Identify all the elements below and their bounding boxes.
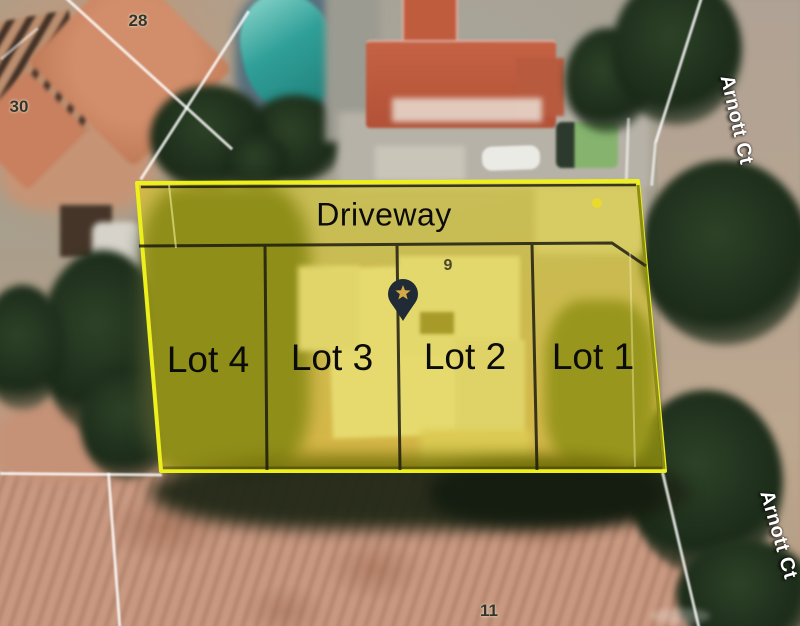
parcel-number-11: 11 xyxy=(480,601,498,621)
driveway-label: Driveway xyxy=(316,197,452,234)
lot-4-label: Lot 4 xyxy=(167,339,249,381)
lot-1-label: Lot 1 xyxy=(552,336,634,378)
lot-2-label: Lot 2 xyxy=(424,336,506,378)
parcel-number-30: 30 xyxy=(10,97,29,117)
parcel-number-28: 28 xyxy=(129,11,148,31)
parcel-number-9: 9 xyxy=(444,257,453,275)
lot-3-label: Lot 3 xyxy=(291,337,373,379)
yellow-dot-marker xyxy=(592,198,602,208)
aerial-map: Driveway Lot 4 Lot 3 Lot 2 Lot 1 28 30 9… xyxy=(0,0,800,626)
subdivision-overlay xyxy=(0,0,800,626)
lot4-lot3-divider xyxy=(265,246,267,470)
